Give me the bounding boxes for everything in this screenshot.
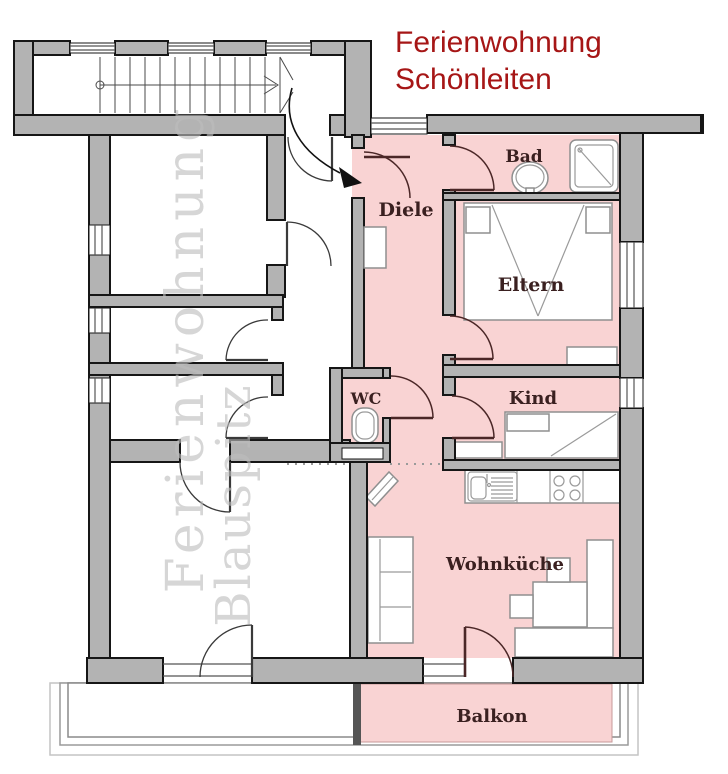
label-diele: Diele xyxy=(378,199,433,221)
window-left-3 xyxy=(89,378,110,403)
title-line1: Ferienwohnung xyxy=(395,26,602,59)
label-bad: Bad xyxy=(505,147,542,167)
label-wc: WC xyxy=(350,389,382,408)
label-wohnkueche: Wohnküche xyxy=(445,554,564,575)
sofa-symbol xyxy=(368,537,413,643)
label-kind: Kind xyxy=(509,388,558,409)
nightstand-eltern xyxy=(567,347,617,365)
label-eltern: Eltern xyxy=(498,274,565,296)
label-balkon: Balkon xyxy=(456,706,527,727)
door-balcony-neighbour xyxy=(200,625,252,677)
window-diele-top xyxy=(371,118,427,134)
title-line2: Schönleiten xyxy=(395,63,552,96)
floor-plan: Ferienwohnung Blauspitz Diele Bad Eltern… xyxy=(0,0,728,774)
page-title: Ferienwohnung Schönleiten xyxy=(395,26,602,96)
window-left-1 xyxy=(89,225,110,255)
kitchen-counter xyxy=(465,470,620,503)
balcony-terrace xyxy=(50,683,638,755)
window-eltern xyxy=(620,242,643,308)
shaft-niche xyxy=(342,448,383,459)
window-top-3 xyxy=(266,43,311,53)
door-stairhall xyxy=(288,137,332,181)
window-left-2 xyxy=(89,308,110,333)
single-bed-symbol xyxy=(505,412,618,458)
radiator-diele xyxy=(364,227,386,268)
window-kind xyxy=(620,378,643,408)
double-bed-symbol xyxy=(464,203,612,320)
watermark-line2: Blauspitz xyxy=(206,383,262,626)
toilet-symbol-wc xyxy=(352,408,378,443)
window-top-1 xyxy=(70,43,115,53)
door-neighbour-room-a xyxy=(226,320,268,360)
shower-symbol xyxy=(570,140,618,192)
door-neighbour-hall xyxy=(287,222,331,266)
floor-plan-page: Ferienwohnung Blauspitz Diele Bad Eltern… xyxy=(0,0,728,774)
window-top-2 xyxy=(168,43,214,53)
nightstand-kind xyxy=(452,442,502,458)
